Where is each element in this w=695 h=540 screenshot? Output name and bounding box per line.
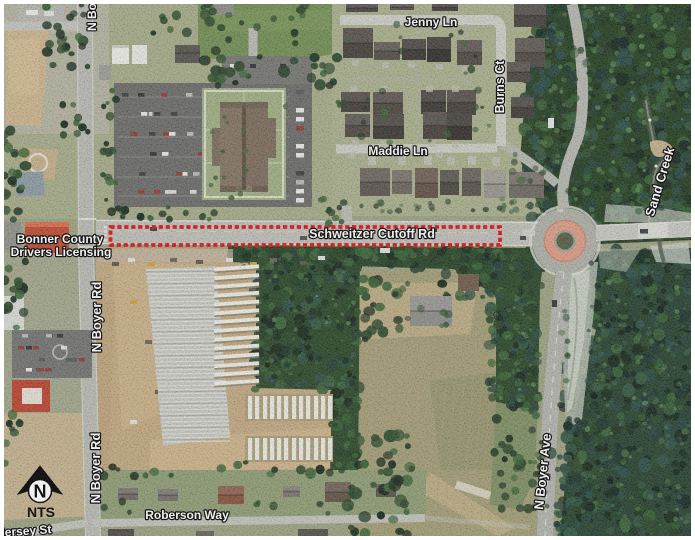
svg-text:Schweitzer Cutoff Rd: Schweitzer Cutoff Rd bbox=[309, 227, 435, 241]
svg-text:Drivers Licensing: Drivers Licensing bbox=[11, 245, 112, 259]
svg-text:Bonner County: Bonner County bbox=[17, 232, 104, 246]
svg-text:N Boyer Rd: N Boyer Rd bbox=[89, 282, 104, 353]
svg-text:Burns Ct: Burns Ct bbox=[493, 60, 507, 114]
svg-text:Roberson Way: Roberson Way bbox=[145, 508, 229, 522]
svg-text:N: N bbox=[34, 482, 47, 502]
svg-text:N Boyer Rd: N Boyer Rd bbox=[88, 433, 103, 504]
svg-text:Maddie Ln: Maddie Ln bbox=[368, 144, 427, 158]
svg-text:Jenny Ln: Jenny Ln bbox=[405, 15, 458, 29]
svg-text:NTS: NTS bbox=[27, 504, 55, 520]
svg-text:N Boyer Rd: N Boyer Rd bbox=[85, 0, 99, 31]
